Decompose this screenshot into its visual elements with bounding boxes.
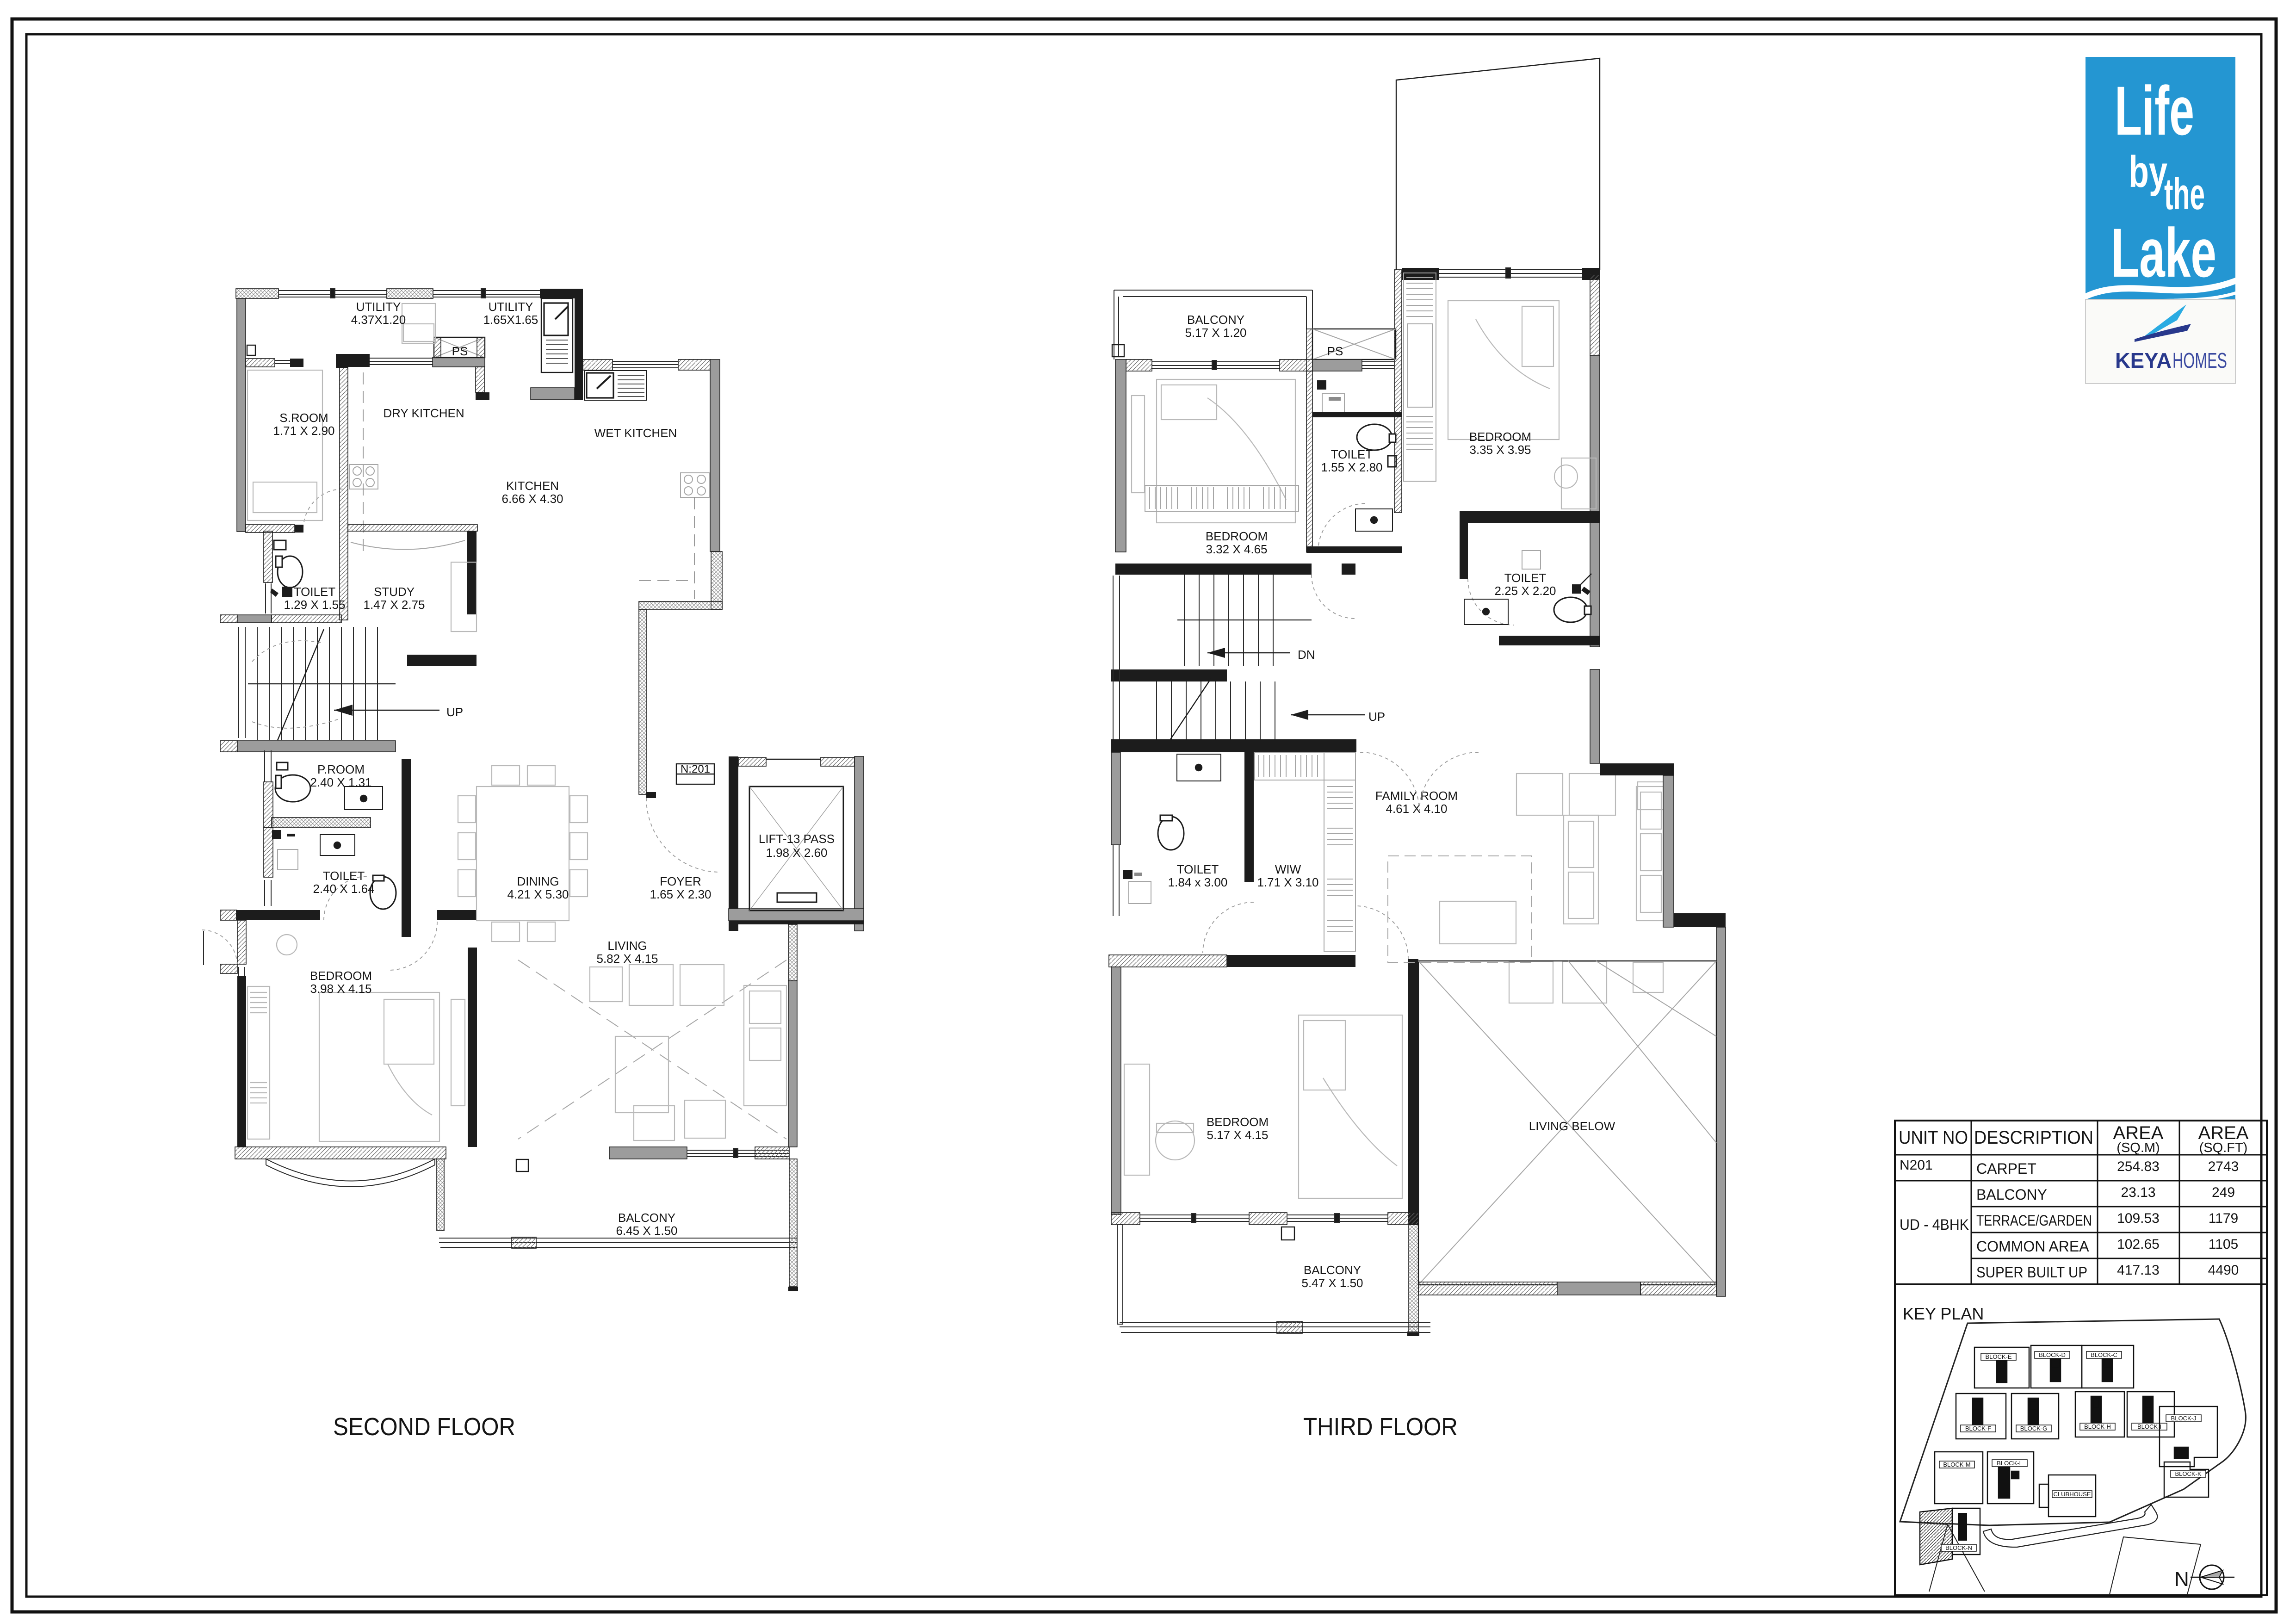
svg-text:BLOCK-M: BLOCK-M: [1943, 1461, 1970, 1468]
svg-text:FOYER: FOYER: [660, 874, 701, 888]
svg-text:254.83: 254.83: [2117, 1159, 2160, 1174]
svg-text:1.55 X 2.80: 1.55 X 2.80: [1321, 460, 1383, 474]
svg-text:TERRACE/GARDEN: TERRACE/GARDEN: [1976, 1212, 2092, 1229]
svg-text:3.98 X 4.15: 3.98 X 4.15: [310, 982, 372, 996]
svg-text:1.65 X 2.30: 1.65 X 2.30: [650, 887, 712, 901]
svg-text:HOMES: HOMES: [2172, 348, 2227, 372]
svg-text:1.71 X 2.90: 1.71 X 2.90: [273, 424, 335, 438]
svg-text:6.66 X 4.30: 6.66 X 4.30: [502, 492, 563, 506]
svg-text:LIVING: LIVING: [607, 939, 647, 953]
svg-text:KEYA: KEYA: [2115, 348, 2172, 372]
svg-text:6.45 X 1.50: 6.45 X 1.50: [616, 1224, 678, 1238]
svg-text:THIRD FLOOR: THIRD FLOOR: [1303, 1413, 1458, 1441]
svg-text:4.61 X 4.10: 4.61 X 4.10: [1386, 802, 1448, 816]
svg-text:BLOCK-N: BLOCK-N: [1945, 1544, 1972, 1551]
svg-text:1105: 1105: [2209, 1237, 2239, 1252]
svg-text:UTILITY: UTILITY: [489, 300, 533, 314]
svg-text:UNIT NO: UNIT NO: [1899, 1127, 1968, 1148]
svg-text:UP: UP: [446, 705, 463, 719]
svg-text:TOILET: TOILET: [1504, 571, 1547, 585]
svg-text:CLUBHOUSE: CLUBHOUSE: [2054, 1491, 2091, 1498]
svg-text:BLOCK-E: BLOCK-E: [1985, 1353, 2011, 1360]
svg-text:DN: DN: [1298, 648, 1315, 662]
svg-text:1.84 x 3.00: 1.84 x 3.00: [1168, 875, 1228, 889]
svg-text:TOILET: TOILET: [294, 585, 336, 599]
svg-text:KITCHEN: KITCHEN: [506, 479, 559, 493]
svg-text:BEDROOM: BEDROOM: [1207, 1115, 1269, 1129]
svg-text:BLOCK-G: BLOCK-G: [2020, 1425, 2048, 1432]
svg-text:BEDROOM: BEDROOM: [1469, 430, 1531, 444]
svg-text:BEDROOM: BEDROOM: [1206, 529, 1268, 543]
svg-text:Life: Life: [2115, 72, 2194, 149]
svg-text:S.ROOM: S.ROOM: [279, 411, 328, 425]
svg-text:BALCONY: BALCONY: [1976, 1186, 2047, 1203]
svg-text:BLOCK-C: BLOCK-C: [2091, 1351, 2117, 1358]
svg-text:N201: N201: [1900, 1158, 1933, 1173]
svg-text:5.47 X 1.50: 5.47 X 1.50: [1302, 1276, 1363, 1290]
svg-text:5.17 X 1.20: 5.17 X 1.20: [1185, 326, 1247, 340]
svg-text:BLOCK-I: BLOCK-I: [2137, 1423, 2161, 1430]
svg-text:TOILET: TOILET: [1177, 862, 1219, 876]
svg-text:SUPER BUILT UP: SUPER BUILT UP: [1976, 1264, 2087, 1281]
svg-text:BLOCK-J: BLOCK-J: [2171, 1415, 2197, 1422]
svg-text:N: N: [2174, 1568, 2189, 1591]
svg-text:CARPET: CARPET: [1976, 1160, 2036, 1177]
svg-text:3.32 X 4.65: 3.32 X 4.65: [1206, 542, 1268, 556]
svg-text:BALCONY: BALCONY: [1187, 313, 1244, 327]
svg-text:BALCONY: BALCONY: [1304, 1263, 1361, 1277]
svg-text:3.35 X 3.95: 3.35 X 3.95: [1470, 443, 1531, 457]
svg-text:LIVING BELOW: LIVING BELOW: [1529, 1119, 1615, 1133]
svg-text:DINING: DINING: [517, 874, 559, 888]
svg-text:(SQ.M): (SQ.M): [2117, 1140, 2160, 1155]
svg-text:UTILITY: UTILITY: [356, 300, 401, 314]
svg-text:DESCRIPTION: DESCRIPTION: [1974, 1127, 2093, 1148]
svg-text:BEDROOM: BEDROOM: [310, 969, 372, 983]
svg-text:1.98 X 2.60: 1.98 X 2.60: [766, 846, 828, 860]
svg-text:LIFT-13 PASS: LIFT-13 PASS: [759, 832, 835, 846]
svg-text:Lake: Lake: [2111, 214, 2216, 291]
svg-text:(SQ.FT): (SQ.FT): [2199, 1140, 2248, 1155]
svg-text:23.13: 23.13: [2121, 1185, 2155, 1200]
svg-text:417.13: 417.13: [2117, 1263, 2160, 1278]
svg-text:DRY KITCHEN: DRY KITCHEN: [383, 406, 464, 420]
svg-text:WET KITCHEN: WET KITCHEN: [594, 426, 677, 440]
svg-text:109.53: 109.53: [2117, 1211, 2160, 1226]
svg-text:N:201: N:201: [681, 763, 710, 775]
svg-text:KEY PLAN: KEY PLAN: [1903, 1304, 1984, 1323]
svg-text:TOILET: TOILET: [1331, 447, 1373, 461]
svg-text:BLOCK-L: BLOCK-L: [1997, 1460, 2023, 1467]
svg-text:COMMON AREA: COMMON AREA: [1976, 1238, 2089, 1255]
svg-text:5.17 X 4.15: 5.17 X 4.15: [1207, 1128, 1269, 1142]
svg-text:1179: 1179: [2209, 1211, 2239, 1226]
svg-text:BLOCK-D: BLOCK-D: [2039, 1351, 2066, 1358]
svg-text:UP: UP: [1368, 710, 1385, 724]
svg-text:PS: PS: [1327, 344, 1343, 358]
svg-text:STUDY: STUDY: [374, 585, 415, 599]
svg-text:the: the: [2164, 169, 2205, 219]
svg-text:1.71 X 3.10: 1.71 X 3.10: [1257, 875, 1319, 889]
svg-text:4490: 4490: [2208, 1263, 2239, 1278]
svg-text:102.65: 102.65: [2117, 1237, 2160, 1252]
svg-text:249: 249: [2212, 1185, 2235, 1200]
svg-text:TOILET: TOILET: [323, 869, 365, 883]
svg-text:2743: 2743: [2208, 1159, 2239, 1174]
svg-text:1.29 X 1.55: 1.29 X 1.55: [284, 598, 346, 612]
svg-text:2.40 X 1.31: 2.40 X 1.31: [310, 775, 372, 789]
svg-text:1.47 X 2.75: 1.47 X 2.75: [364, 598, 425, 612]
svg-text:PS: PS: [452, 344, 468, 358]
svg-text:FAMILY ROOM: FAMILY ROOM: [1375, 789, 1458, 803]
svg-text:BLOCK-F: BLOCK-F: [1965, 1425, 1991, 1432]
svg-text:BLOCK-K: BLOCK-K: [2175, 1470, 2201, 1477]
svg-text:BLOCK-H: BLOCK-H: [2084, 1423, 2111, 1430]
svg-text:P.ROOM: P.ROOM: [317, 762, 365, 776]
svg-text:SECOND FLOOR: SECOND FLOOR: [333, 1413, 515, 1441]
svg-text:WIW: WIW: [1275, 862, 1301, 876]
svg-text:2.40 X 1.64: 2.40 X 1.64: [313, 882, 375, 896]
svg-text:5.82 X 4.15: 5.82 X 4.15: [597, 952, 658, 966]
svg-text:2.25 X 2.20: 2.25 X 2.20: [1495, 584, 1556, 598]
svg-text:by: by: [2129, 147, 2167, 197]
svg-text:UD - 4BHK: UD - 4BHK: [1900, 1216, 1969, 1233]
svg-text:BALCONY: BALCONY: [618, 1211, 675, 1225]
svg-text:4.37X1.20: 4.37X1.20: [351, 313, 406, 327]
svg-text:4.21 X 5.30: 4.21 X 5.30: [507, 887, 569, 901]
svg-text:1.65X1.65: 1.65X1.65: [483, 313, 538, 327]
